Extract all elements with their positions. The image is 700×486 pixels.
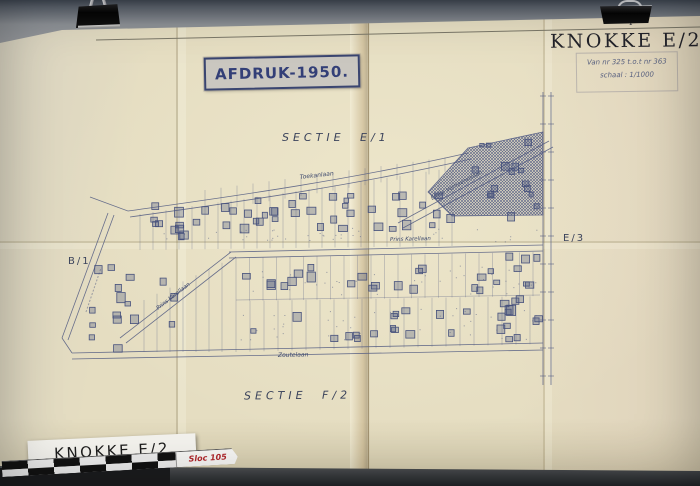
street-label-prins-karellaan: Prins Karellaan bbox=[390, 236, 432, 243]
map-title: KNOKKE E/2 bbox=[550, 29, 700, 53]
parcel-range-box: Van nr 325 t.o.t nr 363 schaal : 1/1000 bbox=[576, 51, 679, 92]
street-label-zoutelaan: Zoutelaan bbox=[277, 351, 309, 359]
parcel-range-text: Van nr 325 t.o.t nr 363 bbox=[577, 55, 677, 70]
afdruk-1950-stamp: AFDRUK-1950. bbox=[204, 54, 361, 90]
scale-text: schaal : 1/1000 bbox=[577, 69, 677, 84]
street-label-prins-karellaan-diagonal: Prins Karellaan bbox=[156, 281, 192, 311]
section-label-f2: SECTIE F/2 bbox=[244, 389, 351, 403]
section-label-e3: E/3 bbox=[563, 233, 585, 244]
section-label-e1: SECTIE E/1 bbox=[282, 131, 390, 144]
photo-of-cadastral-map: Toekanlaan Emile Verhaerenlaan Prins Kar… bbox=[0, 0, 700, 486]
section-label-b1: B/1 bbox=[68, 256, 91, 267]
binder-clip-right bbox=[600, 4, 652, 24]
